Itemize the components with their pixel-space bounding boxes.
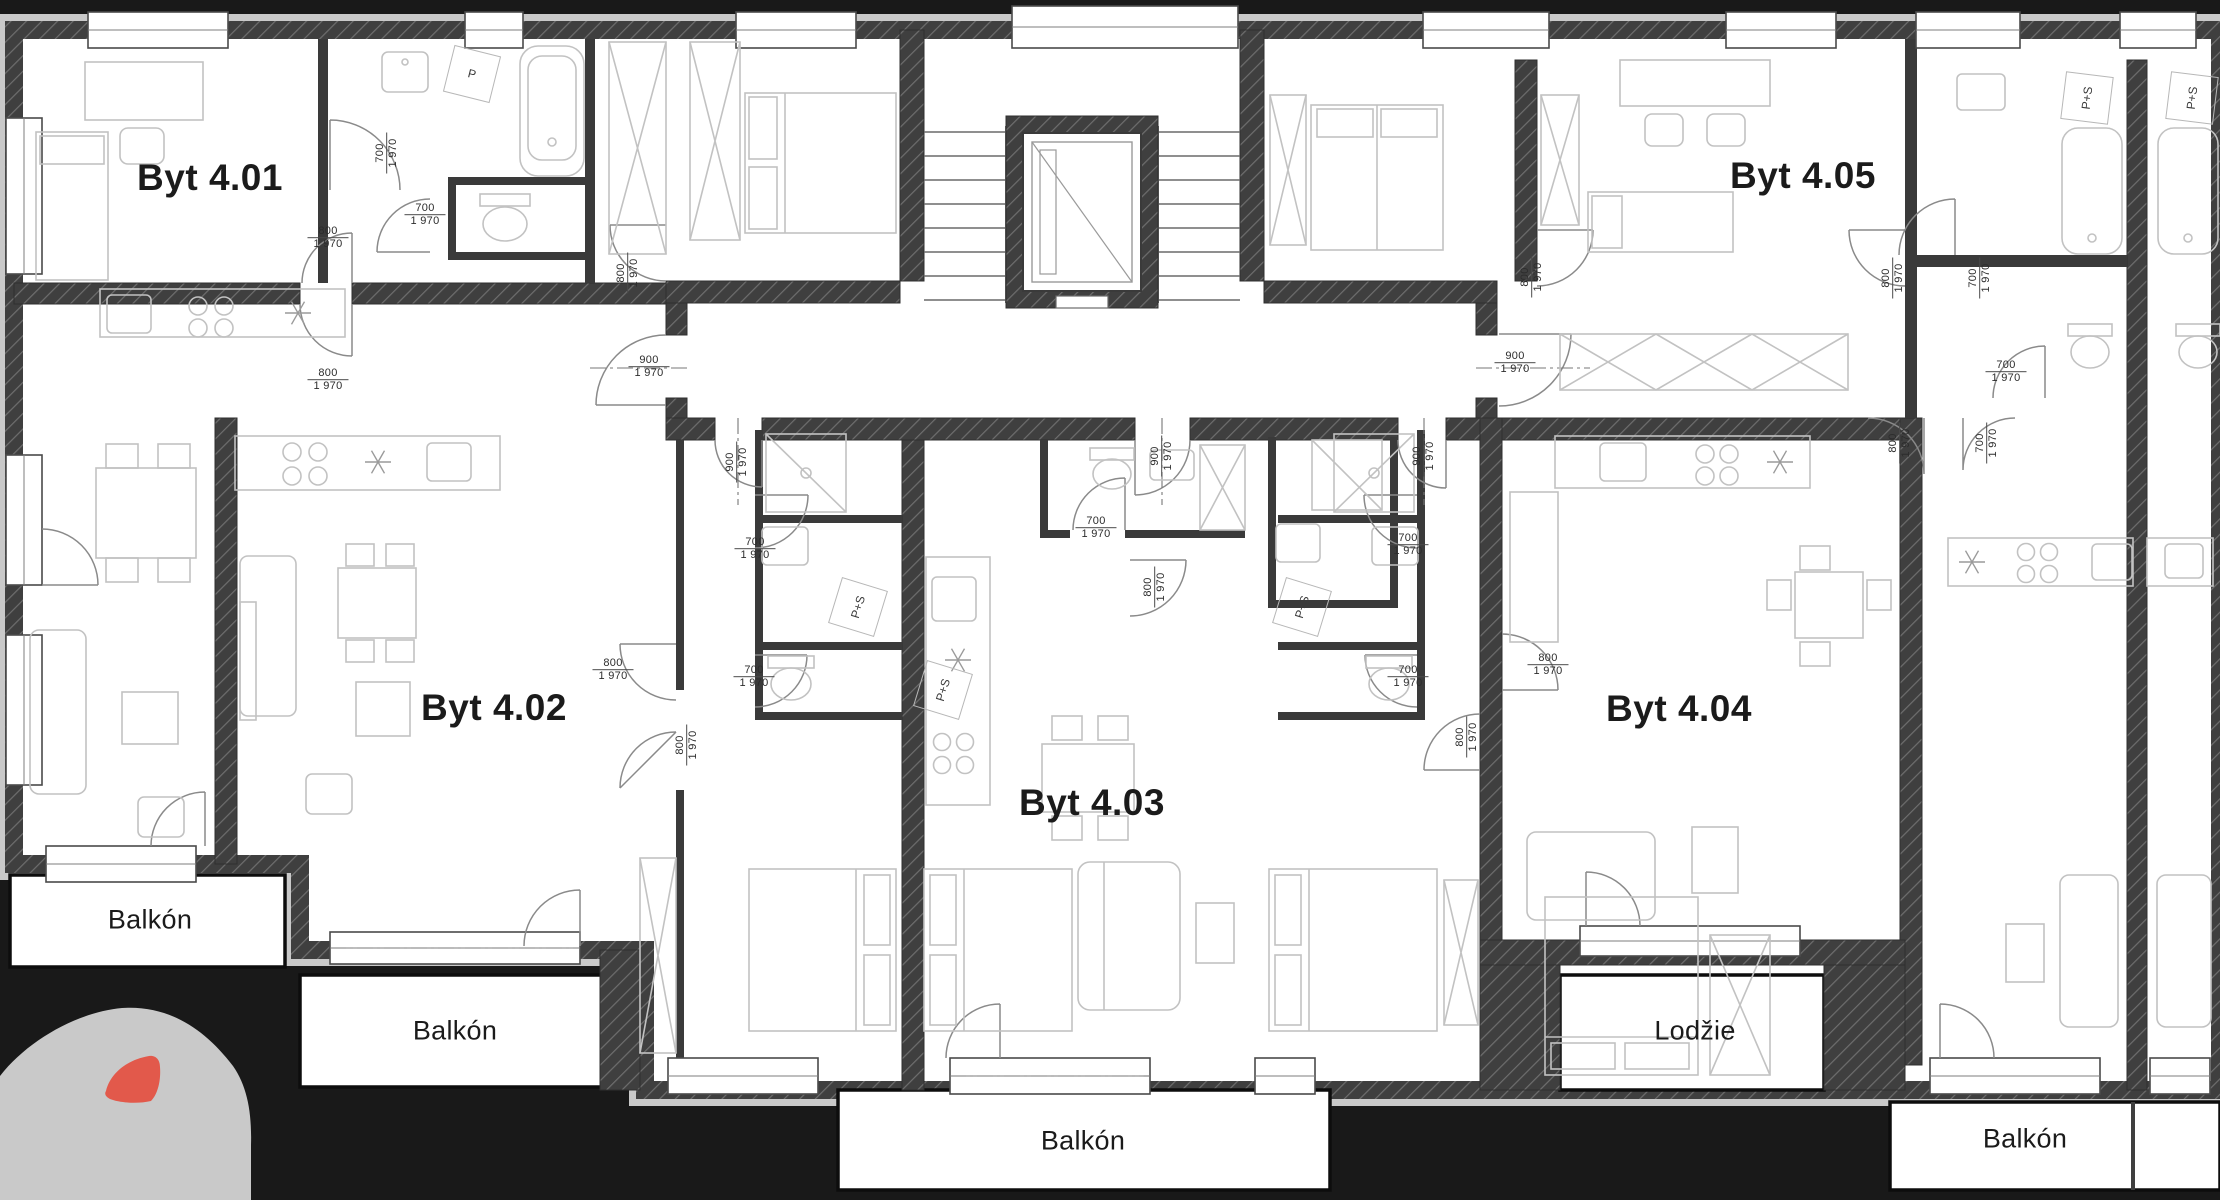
elevator: [1006, 116, 1158, 308]
floor-plan-page: Byt 4.01 Byt 4.02 Byt 4.03 Byt 4.04 Byt …: [0, 0, 2220, 1200]
floor-plan-canvas: [0, 0, 2220, 1200]
